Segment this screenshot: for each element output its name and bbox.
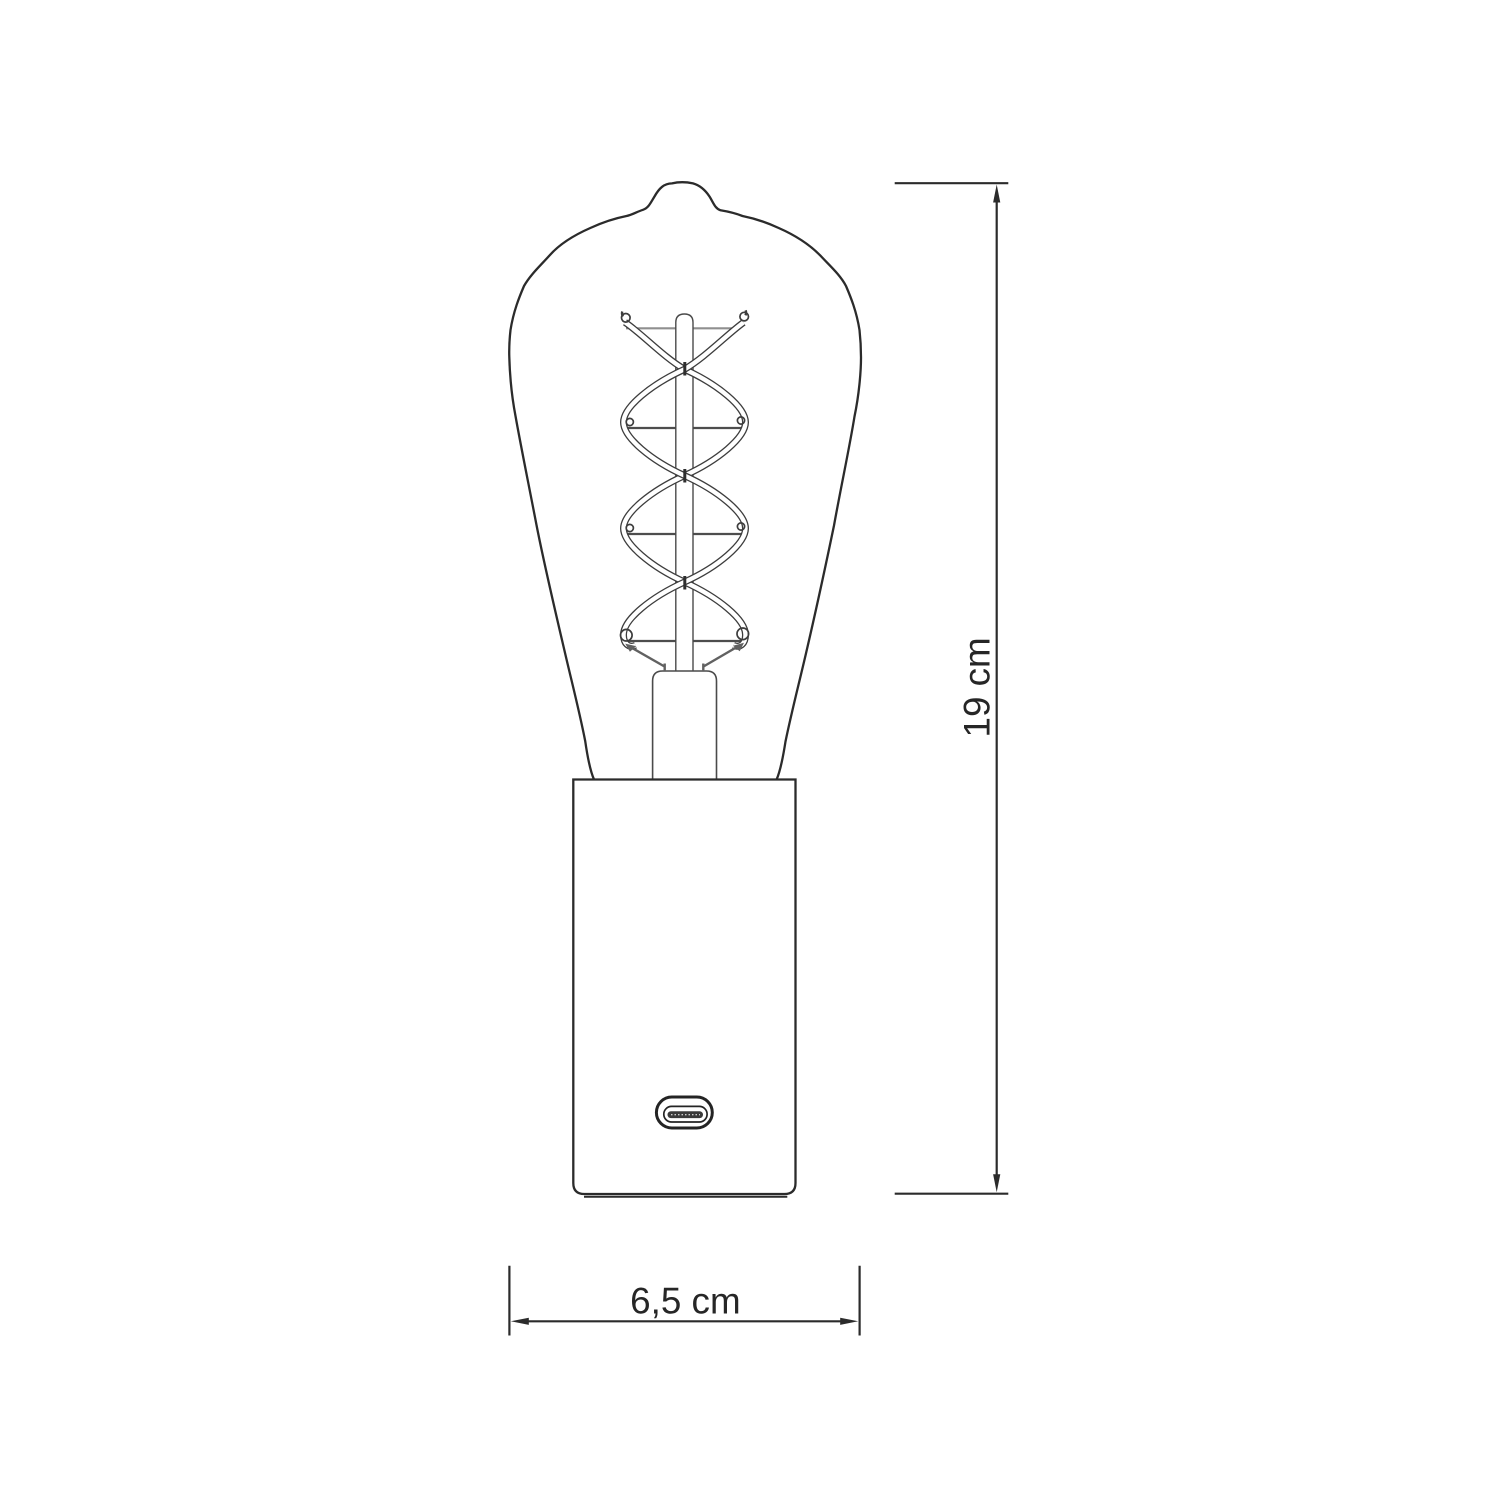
svg-text:19 cm: 19 cm [957, 637, 998, 737]
svg-text:6,5 cm: 6,5 cm [630, 1280, 740, 1321]
